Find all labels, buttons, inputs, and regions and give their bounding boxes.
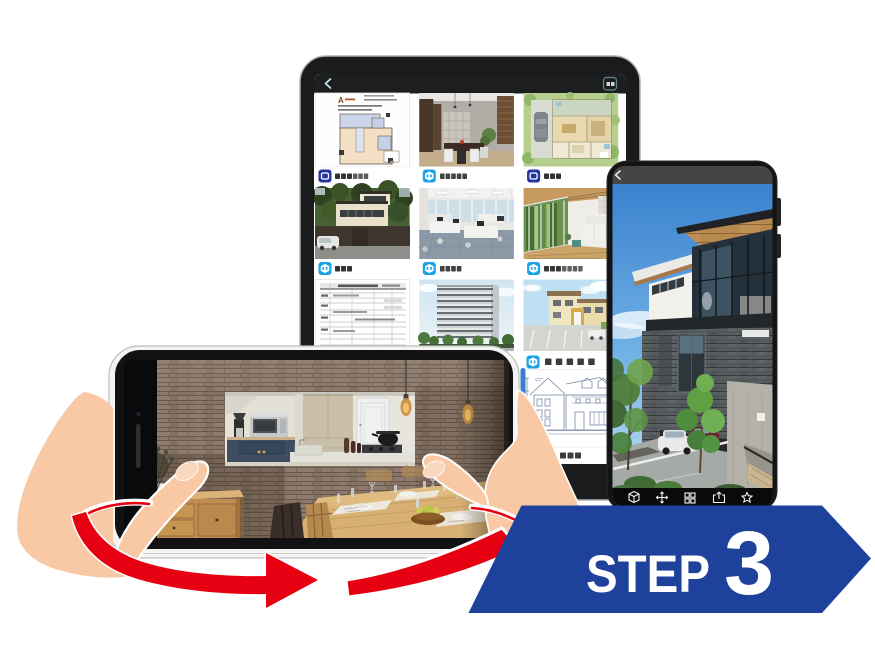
- svg-text:A: A: [338, 96, 344, 105]
- svg-text:3: 3: [724, 514, 774, 614]
- svg-text:STEP: STEP: [586, 545, 710, 604]
